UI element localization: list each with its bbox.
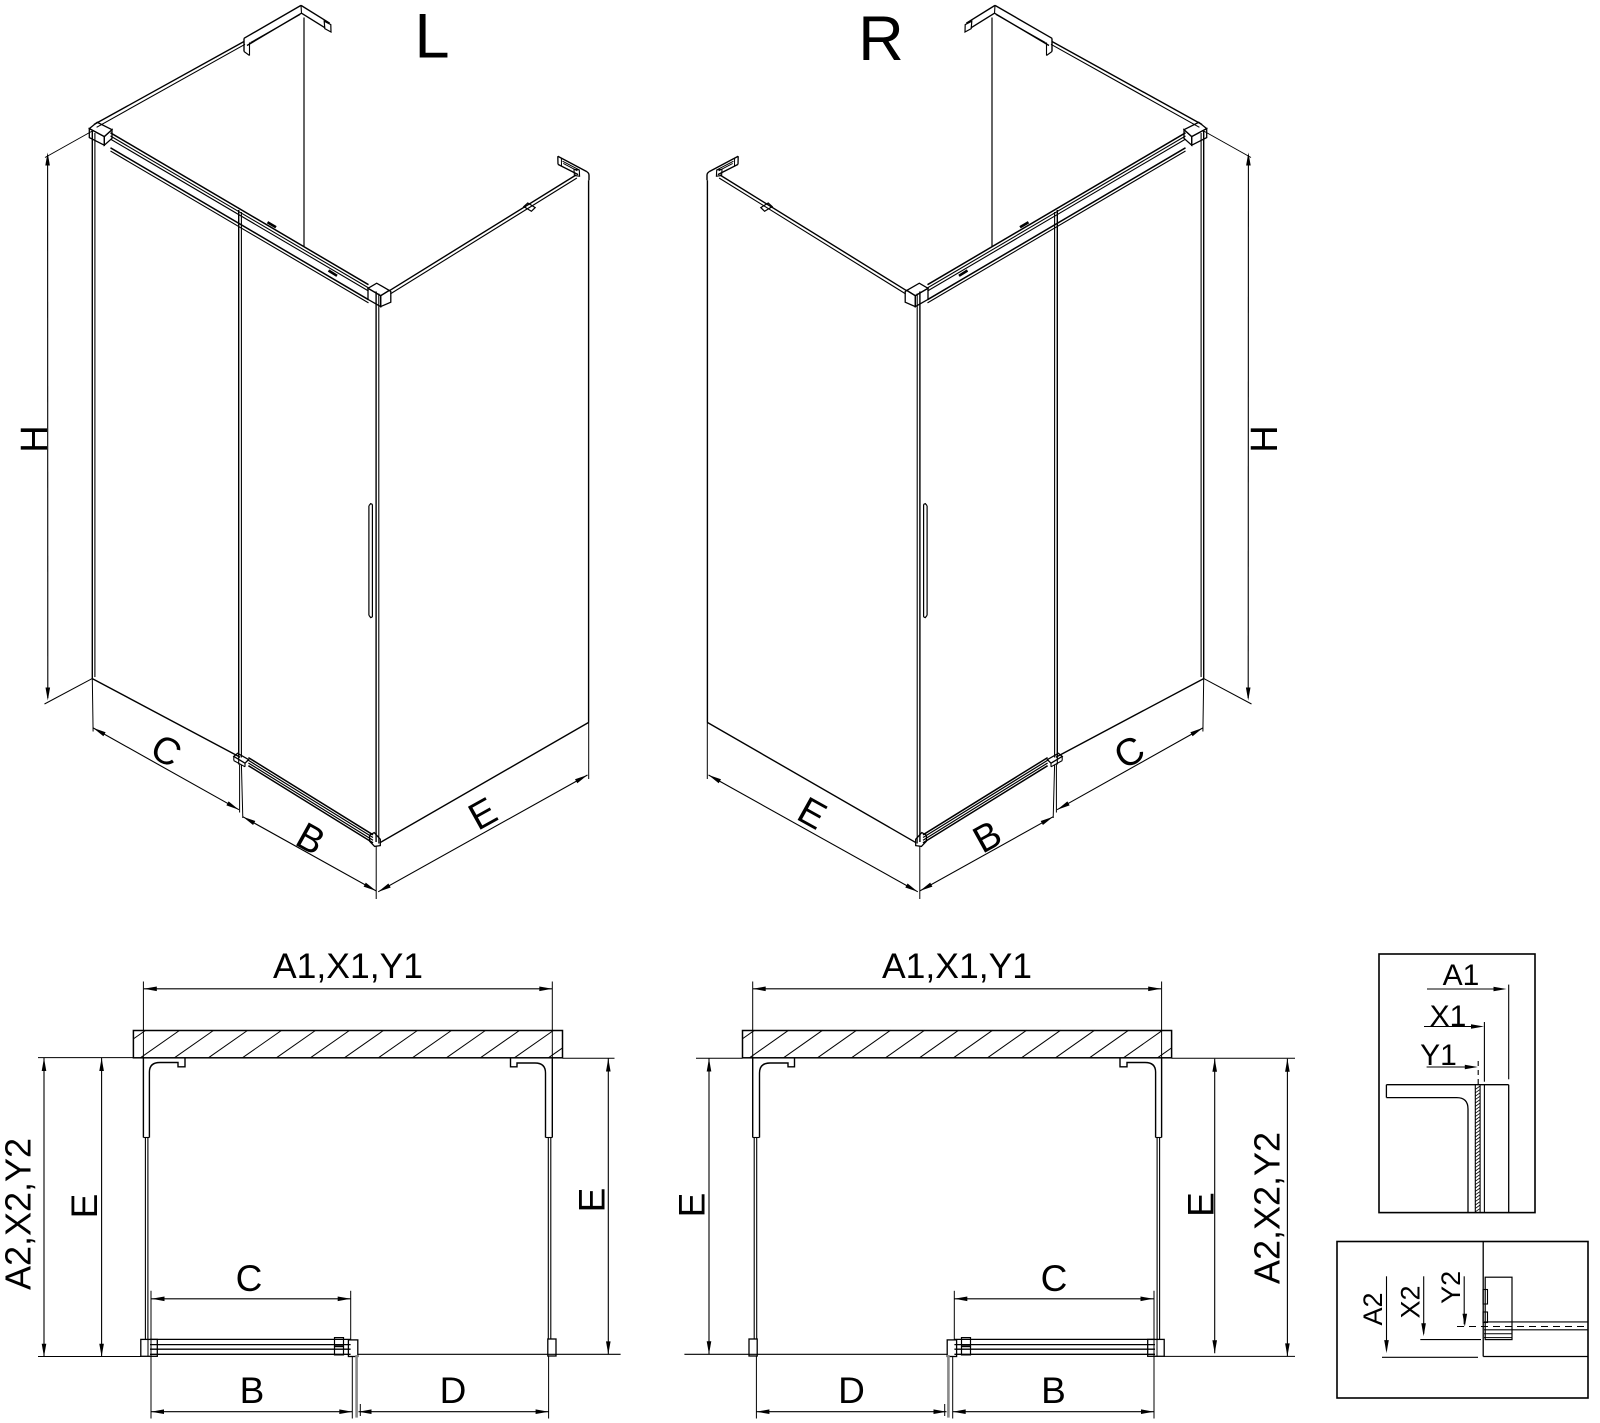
svg-text:Y2: Y2 <box>1436 1271 1466 1304</box>
svg-text:X1: X1 <box>1430 1000 1467 1033</box>
svg-text:L: L <box>414 2 449 72</box>
svg-text:A1: A1 <box>1443 959 1480 992</box>
svg-text:A1,X1,Y1: A1,X1,Y1 <box>273 946 423 986</box>
svg-text:C: C <box>236 1258 263 1299</box>
svg-text:A1,X1,Y1: A1,X1,Y1 <box>882 946 1032 986</box>
svg-text:X2: X2 <box>1395 1285 1425 1318</box>
svg-text:R: R <box>858 4 904 74</box>
svg-text:H: H <box>14 425 56 452</box>
svg-text:D: D <box>440 1370 467 1411</box>
svg-text:A2: A2 <box>1358 1292 1388 1325</box>
svg-text:H: H <box>1244 425 1286 452</box>
svg-text:E: E <box>572 1188 613 1213</box>
svg-text:E: E <box>1181 1192 1222 1217</box>
svg-text:B: B <box>1041 1370 1066 1411</box>
svg-text:E: E <box>672 1193 713 1218</box>
svg-text:C: C <box>1041 1258 1068 1299</box>
svg-text:A2,X2,Y2: A2,X2,Y2 <box>0 1138 39 1290</box>
svg-text:D: D <box>838 1370 865 1411</box>
svg-text:E: E <box>64 1194 105 1219</box>
svg-text:A2,X2,Y2: A2,X2,Y2 <box>1247 1132 1288 1284</box>
svg-text:B: B <box>240 1370 265 1411</box>
